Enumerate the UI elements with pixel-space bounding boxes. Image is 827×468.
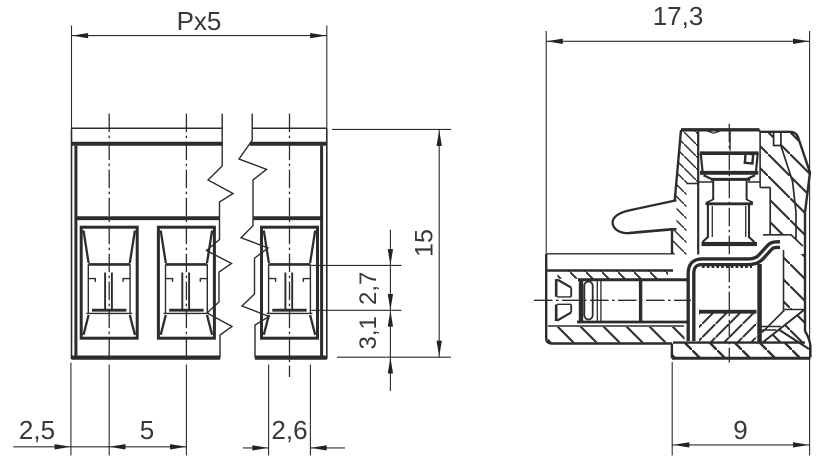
svg-text:17,3: 17,3 [653, 1, 704, 31]
svg-text:3,1: 3,1 [355, 316, 382, 349]
svg-text:2,5: 2,5 [19, 415, 55, 445]
svg-text:9: 9 [733, 415, 747, 445]
svg-text:Px5: Px5 [177, 6, 222, 36]
svg-text:2,6: 2,6 [271, 415, 307, 445]
svg-text:5: 5 [140, 415, 154, 445]
svg-text:2,7: 2,7 [355, 272, 382, 305]
svg-text:15: 15 [410, 229, 438, 257]
